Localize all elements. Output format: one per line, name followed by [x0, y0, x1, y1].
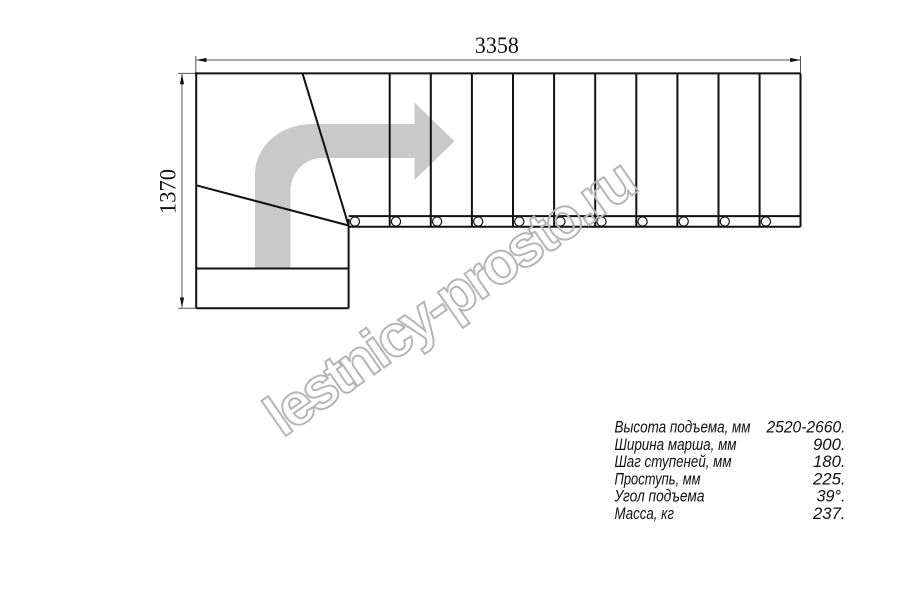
svg-text:225.: 225. [812, 470, 846, 488]
svg-text:39°.: 39°. [817, 488, 846, 506]
svg-text:1370: 1370 [156, 169, 181, 214]
svg-text:Масса, кг: Масса, кг [615, 505, 675, 523]
svg-text:2520-2660.: 2520-2660. [766, 419, 846, 437]
svg-text:180.: 180. [813, 453, 846, 471]
svg-text:237.: 237. [812, 505, 846, 523]
svg-text:Высота подъема, мм: Высота подъема, мм [615, 419, 751, 437]
svg-text:Угол подъема: Угол подъема [614, 488, 705, 506]
svg-text:Шаг ступеней, мм: Шаг ступеней, мм [615, 453, 732, 471]
svg-text:Проступь, мм: Проступь, мм [615, 470, 701, 488]
svg-text:3358: 3358 [475, 33, 519, 58]
svg-text:Ширина марша, мм: Ширина марша, мм [615, 436, 737, 454]
svg-text:900.: 900. [813, 436, 846, 454]
